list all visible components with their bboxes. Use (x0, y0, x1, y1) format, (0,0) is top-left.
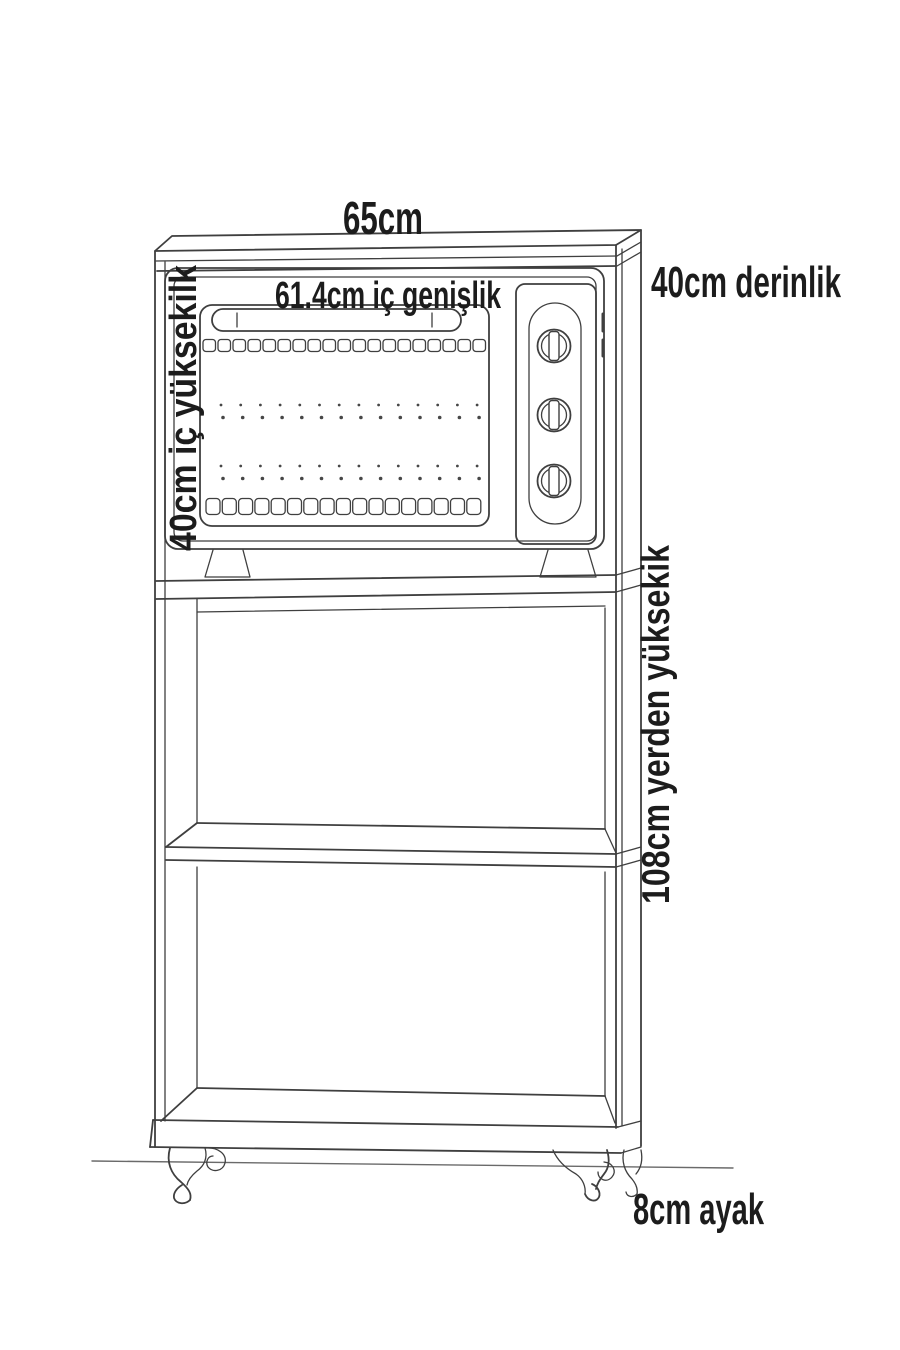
oven-control-panel (516, 284, 596, 544)
bottom-panel (150, 1120, 641, 1153)
oven-glass-dots (220, 404, 481, 481)
oven-knob-top (538, 330, 571, 363)
label-depth: 40cm derinlik (651, 258, 841, 307)
label-height-from-floor: 108cm yerden yüksekik (635, 545, 678, 904)
cabriole-legs (169, 1148, 642, 1203)
furniture-dimension-diagram: 65cm 61.4cm iç genişlik 40cm iç yüksekil… (0, 0, 900, 1350)
label-inner-width: 61.4cm iç genişlik (275, 275, 502, 317)
label-top-width: 65cm (343, 192, 423, 244)
leg-front-left (169, 1148, 226, 1203)
cabinet-frame (155, 230, 641, 1147)
label-inner-height: 40cm iç yüksekilk (163, 264, 205, 551)
oven-bottom-vents (206, 499, 481, 515)
middle-shelf (166, 823, 641, 867)
oven-door-window (200, 305, 489, 526)
bottom-compartment (161, 867, 615, 1123)
shelf-under-oven (156, 568, 641, 829)
oven-knob-middle (538, 399, 571, 432)
oven-knob-bottom (538, 465, 571, 498)
leg-front-right (553, 1150, 614, 1201)
oven-foot-right (540, 550, 596, 577)
oven-top-vents (203, 340, 486, 352)
diagram-canvas: 65cm 61.4cm iç genişlik 40cm iç yüksekil… (0, 0, 900, 1350)
label-leg-height: 8cm ayak (633, 1185, 764, 1234)
dimension-labels: 65cm 61.4cm iç genişlik 40cm iç yüksekil… (163, 192, 841, 1234)
oven-foot-left (205, 550, 250, 577)
ground-line (92, 1161, 733, 1168)
